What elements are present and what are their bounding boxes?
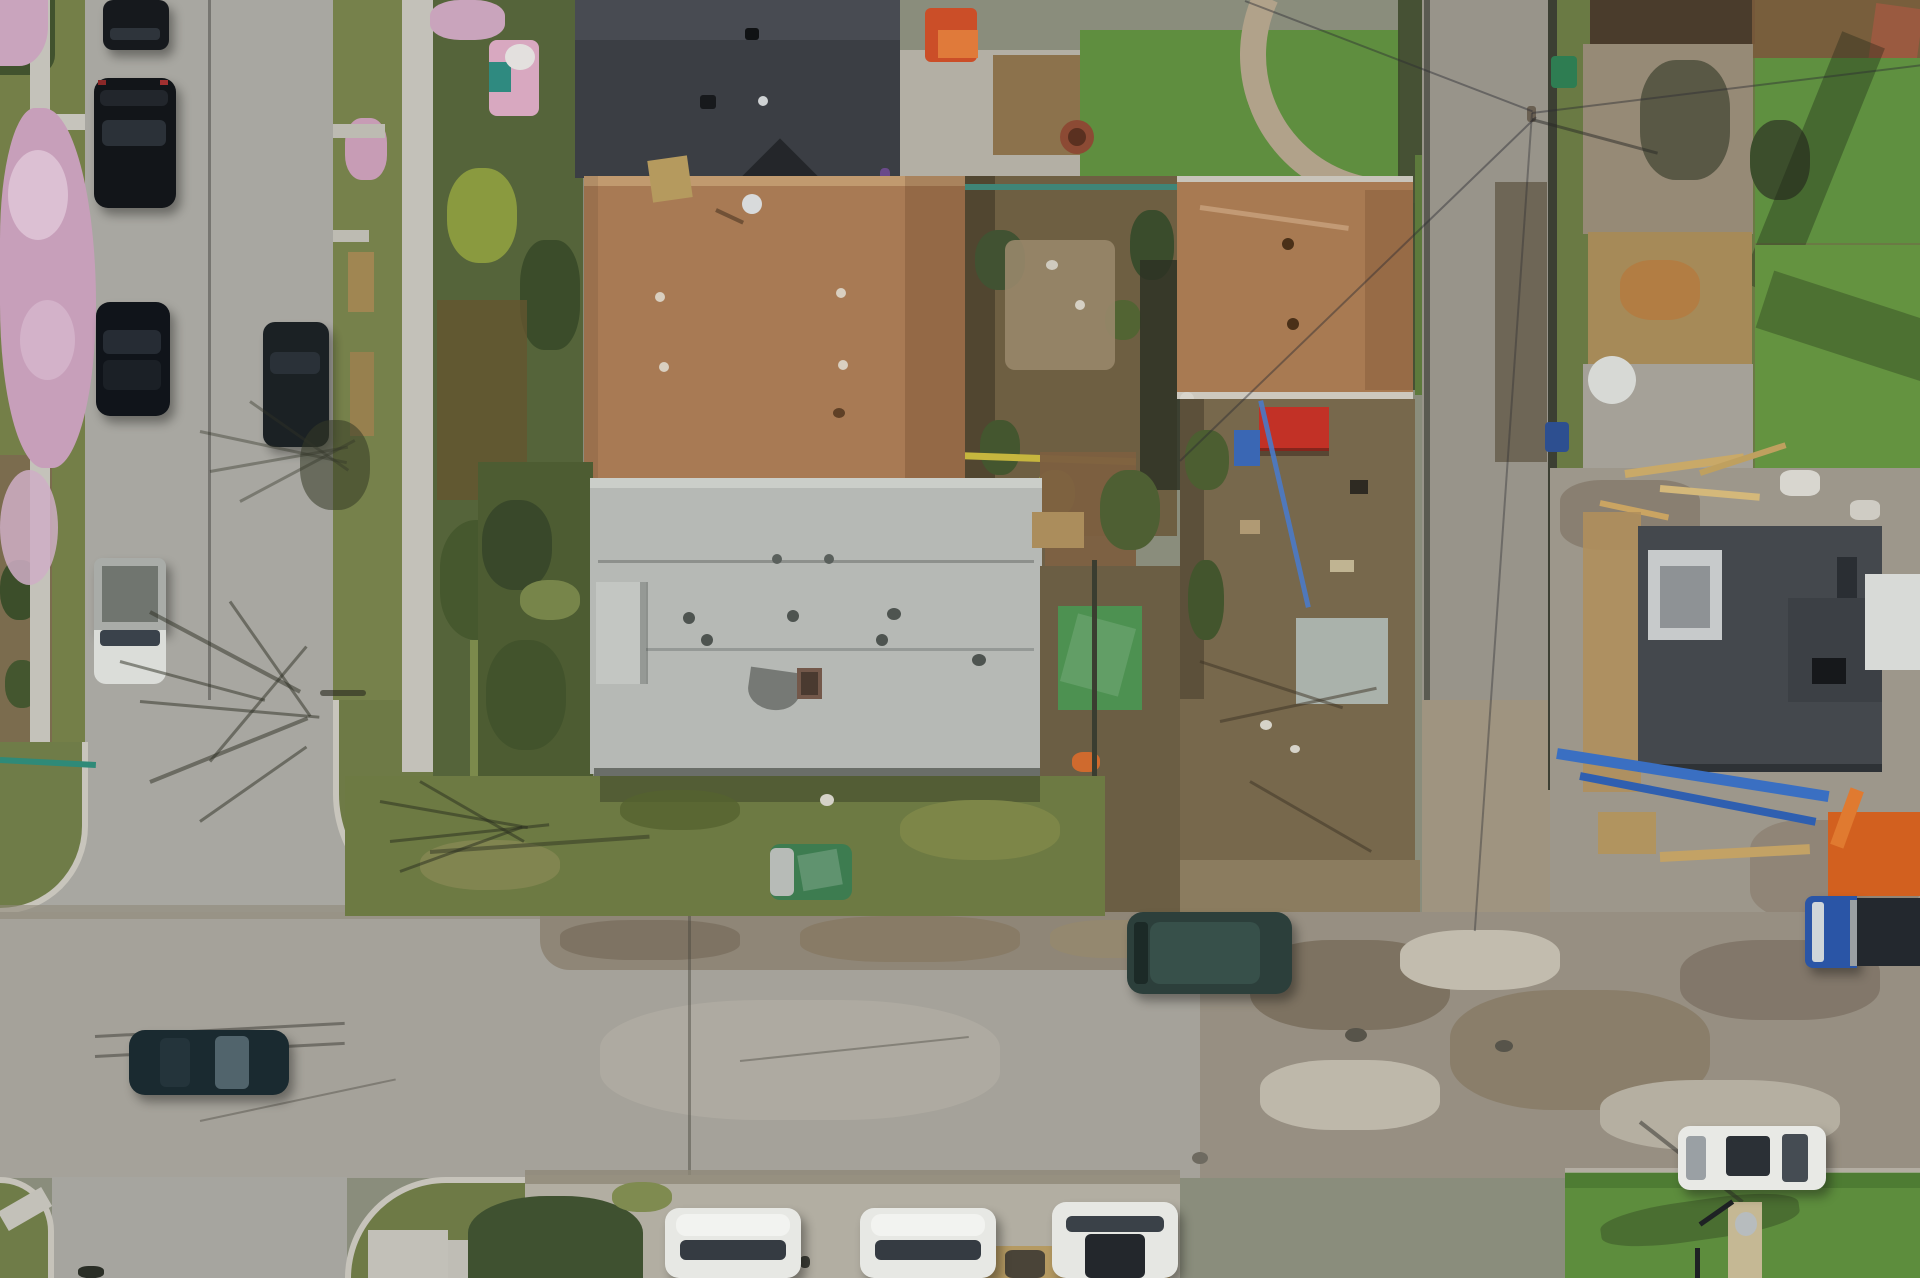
road-crack (688, 912, 691, 1177)
car-taillight (160, 80, 168, 85)
yard2-junk-white (1290, 745, 1300, 753)
dormer-window (1812, 658, 1846, 684)
light-patch (1260, 1060, 1440, 1130)
car-windshield (103, 330, 161, 354)
white-debris (1850, 500, 1880, 520)
satellite-dish (742, 194, 762, 214)
lane-fence-shadow (1424, 0, 1430, 700)
street-south-stub (52, 1177, 347, 1278)
roof-ladder (647, 155, 692, 202)
sedan-windshield (1782, 1134, 1808, 1182)
gray-roof-eave (594, 768, 1044, 776)
patio-tree-shadow (1640, 60, 1730, 180)
yard2-dirt-path (1180, 860, 1420, 920)
yard2-bush (1185, 430, 1229, 490)
roof-vent-dark (1287, 318, 1299, 330)
parked-car-black (103, 0, 169, 50)
roof-vent (824, 554, 834, 564)
lamp-arm (1695, 1248, 1700, 1278)
blue-tarp (1234, 430, 1260, 466)
backyard-shade-strip (1140, 260, 1180, 490)
car-windshield (680, 1240, 786, 1260)
car-windshield (875, 1240, 981, 1260)
dirt-blob (560, 920, 740, 960)
suv-windshield (1134, 922, 1148, 984)
yard2-junk (1330, 560, 1354, 572)
bush-row (468, 1196, 643, 1278)
pickup-windshield (100, 630, 160, 646)
lawn-dry-patch (900, 800, 1060, 860)
kids-playhouse-teal (489, 62, 511, 92)
roof-dark-dot (833, 408, 845, 418)
charcoal-roof-sheen (575, 0, 900, 40)
cart-gray-end (770, 848, 794, 896)
roof-vent (972, 654, 986, 666)
dark-equipment (1005, 1250, 1045, 1278)
garden-blossom-top (430, 0, 505, 40)
blossom-tree-lower (0, 470, 58, 585)
gray-roof-seam (598, 648, 1034, 651)
brown2-top-eave (1177, 176, 1413, 182)
lamp-head (1735, 1212, 1757, 1236)
roof-vent-dark (700, 95, 716, 109)
blue-pickup-bed (1857, 898, 1920, 966)
lawn-dark-patch (620, 790, 740, 830)
roof-vent-dark (1282, 238, 1294, 250)
car-taillight (98, 80, 106, 85)
yard2-junk-white (1260, 720, 1272, 730)
sedan-rear-glass (160, 1038, 190, 1087)
scaffolding (1583, 512, 1641, 792)
sedan-dark-blue (129, 1030, 289, 1095)
manhole (1192, 1152, 1208, 1164)
white-tarp (1865, 574, 1920, 670)
aerial-photo-canvas (0, 0, 1920, 1278)
wing-shadow (640, 582, 648, 684)
grass-tuft (612, 1182, 672, 1212)
car-windshield (102, 120, 166, 146)
pedestrian-object (78, 1266, 104, 1278)
gravel-edge (525, 1170, 1180, 1184)
pothole (1345, 1028, 1367, 1042)
roof-vent-white (655, 292, 665, 302)
blossom-highlight (8, 150, 68, 240)
dirt-blob (800, 916, 1020, 962)
west-garden-bush (486, 640, 566, 750)
dark-bush (520, 240, 580, 350)
west-garden-bush (482, 500, 552, 590)
tree-trunk-shadow (320, 690, 366, 696)
car-hood-highlight (676, 1214, 790, 1236)
gray-roof-ridge (598, 560, 1034, 563)
gray-roof-west-wing (596, 582, 646, 684)
garden-box (350, 352, 374, 436)
suv-windshield (1066, 1216, 1164, 1232)
pickup-windshield (1812, 902, 1824, 962)
light-patch (1400, 930, 1560, 990)
yard2-junk-dark (1350, 480, 1368, 494)
kids-playhouse-white (505, 44, 535, 70)
bollard (800, 1256, 810, 1268)
green-bin (1551, 56, 1577, 88)
sedan-sunroof (1726, 1136, 1770, 1176)
backyard-dirt-path (1005, 240, 1115, 370)
gray-roof-top-highlight (590, 478, 1042, 488)
pergola (1590, 0, 1755, 44)
pothole (1495, 1040, 1513, 1052)
teal-fence-line (965, 184, 1177, 190)
backyard-junk-white (1046, 260, 1058, 270)
brown2-bottom-eave (1177, 392, 1413, 399)
yard2-bush (1188, 560, 1224, 640)
car-windshield (110, 28, 160, 40)
blossom-highlight (20, 300, 75, 380)
suv-sunroof (1085, 1234, 1145, 1278)
chimney-flue (801, 672, 818, 695)
backyard-junk-white (1075, 300, 1085, 310)
lawn-white-dot (820, 794, 834, 806)
sedan-windshield (215, 1036, 249, 1089)
yellow-shrub (447, 168, 517, 263)
path-stub (333, 124, 385, 138)
gray-shingle-roof (590, 478, 1042, 774)
suv-roof (1150, 922, 1260, 984)
sedan-rear-glass (1686, 1136, 1706, 1180)
yard2-junk (1240, 520, 1260, 534)
sidewalk-vertical (402, 0, 433, 772)
roof-vent-white (838, 360, 848, 370)
trampoline-cover (1588, 356, 1636, 404)
blue-bin (1545, 422, 1569, 452)
roof-vent (787, 610, 799, 622)
parked-car-black (96, 302, 170, 416)
sidewalk-se (368, 1230, 448, 1278)
roof-window (1837, 557, 1857, 600)
light-patch (600, 1000, 1000, 1120)
west-garden-light (520, 580, 580, 620)
side-yard-bush (1100, 470, 1160, 550)
backyard-bush (980, 420, 1020, 475)
white-debris (1780, 470, 1820, 496)
orange-playhouse-roof (938, 30, 978, 58)
car-roof (103, 360, 161, 390)
garden-box (348, 252, 374, 312)
road-center-crack (208, 0, 211, 700)
roof-vent-dark (745, 28, 759, 40)
dry-garden-orange (1620, 260, 1700, 320)
roof-vent (876, 634, 888, 646)
cold-frame-greenhouse (1296, 618, 1388, 704)
roof-vent (683, 612, 695, 624)
roof-vent-white (836, 288, 846, 298)
cart-sheen (797, 849, 843, 891)
lane-lower-dirt (1422, 700, 1550, 925)
path-stub (333, 230, 369, 242)
roof-vent (701, 634, 713, 646)
roof-vent-white (659, 362, 669, 372)
fire-pit-center (1068, 128, 1086, 146)
pallet-stack (1032, 512, 1084, 548)
boardwalk-steps (1495, 182, 1547, 462)
roof-panel-inner (1660, 566, 1710, 628)
car-windshield (270, 352, 320, 374)
roof-vent (887, 608, 901, 620)
car-hood (100, 90, 168, 106)
brown2-east-fold (1365, 190, 1413, 390)
wood-pallet (1598, 812, 1656, 854)
roof-vent-white (758, 96, 768, 106)
car-hood-highlight (871, 1214, 985, 1236)
roof-vent (772, 554, 782, 564)
